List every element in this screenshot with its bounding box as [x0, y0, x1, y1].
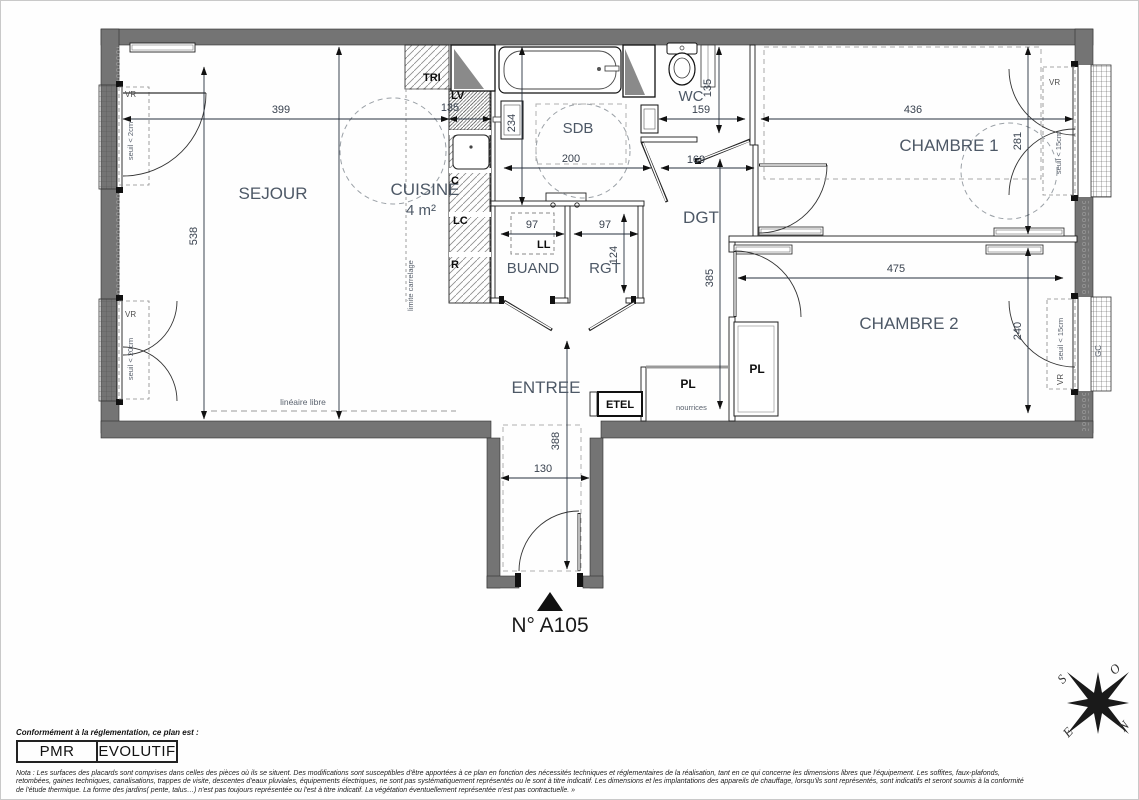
label-seuil-window1: seuil < 2cm [126, 122, 135, 160]
dim-sdb-height: 234 [506, 114, 518, 132]
label-seuil-chambre2: seuil < 15cm [1056, 318, 1065, 360]
compass-south: S [1054, 671, 1070, 686]
label-placard-entree: PL [680, 377, 695, 391]
dim-wc-height: 135 [702, 79, 714, 97]
label-lc: LC [453, 215, 468, 227]
window-sejour-2 [99, 295, 177, 405]
room-label-buand: BUAND [507, 260, 560, 277]
label-vr-chambre2: VR [1056, 374, 1065, 385]
room-label-cuisine-area: 4 m² [406, 202, 436, 219]
entry-triangle-icon [537, 592, 563, 611]
badge-pmr: PMR [16, 740, 98, 763]
technical-duct-sdb [623, 45, 655, 97]
label-lineaire-libre: linéaire libre [280, 397, 326, 407]
footer-caption: Conformément à la réglementation, ce pla… [16, 728, 1126, 737]
dim-chambre2-height: 240 [1012, 322, 1024, 340]
floor-plan-page: 399 135 538 234 200 159 135 169 436 281 … [0, 0, 1139, 800]
unit-marker: N° A105 [511, 592, 588, 637]
dim-cuisine-width: 135 [441, 102, 459, 114]
floor-plan-drawing: 399 135 538 234 200 159 135 169 436 281 … [1, 1, 1139, 800]
label-c: C [451, 175, 459, 187]
label-gc: GC [1094, 345, 1103, 357]
fixtures [130, 43, 1064, 416]
label-etel: ETEL [606, 399, 634, 411]
window-sejour-1 [99, 81, 206, 193]
badge-evolutif: EVOLUTIF [98, 740, 178, 763]
room-label-chambre2: CHAMBRE 2 [859, 314, 958, 333]
dim-sejour-width: 399 [272, 104, 290, 116]
dim-buand-width: 97 [526, 219, 538, 231]
annotation-labels: limite carrelage linéaire libre nourrice… [125, 78, 1103, 412]
kitchen-sink [453, 135, 489, 169]
dim-chambre2-width: 475 [887, 263, 905, 275]
dim-entree-height: 388 [550, 432, 562, 450]
sejour-radiator [130, 43, 195, 52]
dim-entree-width: 130 [534, 463, 552, 475]
exterior-walls [101, 29, 1093, 588]
dim-wc-width: 159 [692, 104, 710, 116]
room-label-rgt: RGT [589, 260, 621, 277]
label-vr-window2: VR [125, 310, 136, 319]
dim-chambre1-height: 281 [1012, 132, 1024, 150]
plan-footer: Conformément à la réglementation, ce pla… [16, 728, 1126, 795]
compass-west: O [1106, 660, 1124, 677]
nota-line-2: retombées, gaines techniques, canalisati… [16, 778, 1126, 786]
label-ll: LL [537, 239, 551, 251]
room-label-sejour: SEJOUR [239, 184, 308, 203]
label-nourrices: nourrices [676, 403, 707, 412]
room-label-sdb: SDB [563, 120, 594, 137]
dim-chambre1-width: 436 [904, 104, 922, 116]
unit-number: N° A105 [511, 614, 588, 637]
nota-line-3: de l'étude thermique. La forme des jardi… [16, 787, 1126, 795]
room-label-chambre1: CHAMBRE 1 [899, 136, 998, 155]
compliance-badges: PMR EVOLUTIF [16, 740, 1126, 763]
room-label-wc: WC [679, 88, 704, 105]
dim-dgt-height: 385 [704, 269, 716, 287]
label-seuil-chambre1: seuil < 15cm [1054, 132, 1063, 174]
label-r: R [451, 259, 459, 271]
dim-sejour-height: 538 [188, 227, 200, 245]
label-vr-window1: VR [125, 90, 136, 99]
pmr-circle-sdb [536, 104, 630, 198]
label-tri: TRI [423, 72, 441, 84]
room-label-entree: ENTREE [512, 378, 581, 397]
label-placard-chambre2: PL [749, 362, 764, 376]
label-lv: LV [451, 90, 465, 102]
dim-rgt-width: 97 [599, 219, 611, 231]
toilet [667, 43, 697, 85]
room-label-dgt: DGT [683, 208, 719, 227]
nota-line-1: Nota : Les surfaces des placards sont co… [16, 770, 1126, 778]
windows [99, 61, 1111, 405]
dim-sdb-width: 200 [562, 153, 580, 165]
hand-basin [641, 105, 658, 133]
dim-dgt-door: 169 [687, 154, 705, 166]
technical-duct-kitchen [451, 45, 495, 91]
bathtub [499, 47, 621, 93]
room-label-cuisine: CUISINE [391, 180, 460, 199]
label-limite-carrelage: limite carrelage [406, 260, 415, 311]
label-seuil-window2: seuil < 20cm [126, 338, 135, 380]
nota-disclaimer: Nota : Les surfaces des placards sont co… [16, 770, 1126, 795]
label-vr-chambre1: VR [1049, 78, 1060, 87]
dashed-guides [211, 47, 1057, 571]
